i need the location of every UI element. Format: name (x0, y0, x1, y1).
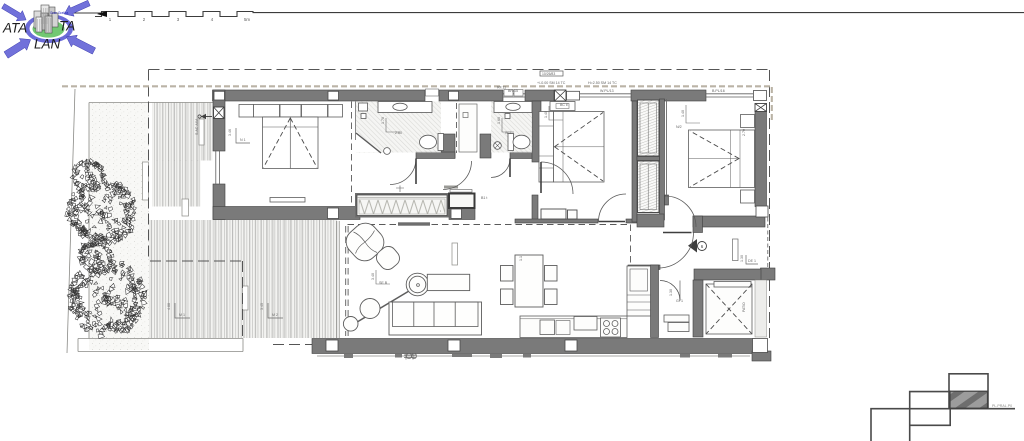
svg-text:1.60: 1.60 (497, 117, 501, 124)
svg-text:SE B: SE B (379, 281, 388, 285)
svg-text:B.PL/16: B.PL/16 (712, 89, 725, 93)
svg-text:LAN: LAN (34, 37, 61, 52)
svg-text:DE 1: DE 1 (748, 259, 756, 263)
svg-text:BC E: BC E (560, 103, 569, 107)
svg-text:10/26/83: 10/26/83 (542, 72, 555, 76)
svg-text:ATA: ATA (2, 21, 27, 36)
svg-text:Gr 1: Gr 1 (676, 299, 683, 303)
svg-text:3.45: 3.45 (260, 303, 264, 310)
svg-text:2.60: 2.60 (395, 131, 402, 135)
svg-text:TA: TA (59, 19, 75, 34)
svg-text:S.AC.AXA: S.AC.AXA (195, 118, 199, 135)
svg-text:M 1: M 1 (179, 313, 185, 317)
svg-text:N/2: N/2 (676, 125, 682, 129)
svg-text:W 2: W 2 (505, 131, 511, 135)
svg-text:5m: 5m (244, 17, 250, 22)
svg-text:2.70: 2.70 (742, 129, 746, 136)
svg-text:+/-0.00 SM 14 TC: +/-0.00 SM 14 TC (537, 81, 566, 85)
svg-text:M 2: M 2 (272, 313, 278, 317)
svg-text:1.70: 1.70 (381, 117, 385, 124)
svg-text:H=2.50 SM 14 TC: H=2.50 SM 14 TC (588, 81, 617, 85)
svg-text:1.30: 1.30 (669, 289, 673, 296)
svg-text:BR/15: BR/15 (508, 89, 518, 93)
svg-text:B1 t: B1 t (481, 196, 487, 200)
svg-text:3.40: 3.40 (371, 273, 375, 280)
svg-text:1.1: 1.1 (519, 256, 523, 261)
svg-text:1.40: 1.40 (681, 110, 685, 117)
svg-text:PATIO: PATIO (742, 302, 746, 312)
svg-text:Gran Grafica: Gran Grafica (50, 11, 68, 15)
svg-text:W.PL/13: W.PL/13 (600, 89, 614, 93)
svg-text:1.30: 1.30 (740, 255, 744, 262)
svg-text:1.40: 1.40 (544, 111, 548, 118)
svg-text:3.46: 3.46 (228, 129, 232, 136)
svg-text:PL.PRAL.P0: PL.PRAL.P0 (992, 404, 1012, 408)
svg-text:4.88: 4.88 (167, 303, 171, 310)
svg-text:N 1: N 1 (240, 138, 246, 142)
svg-text:RF.11: RF.11 (497, 86, 506, 90)
